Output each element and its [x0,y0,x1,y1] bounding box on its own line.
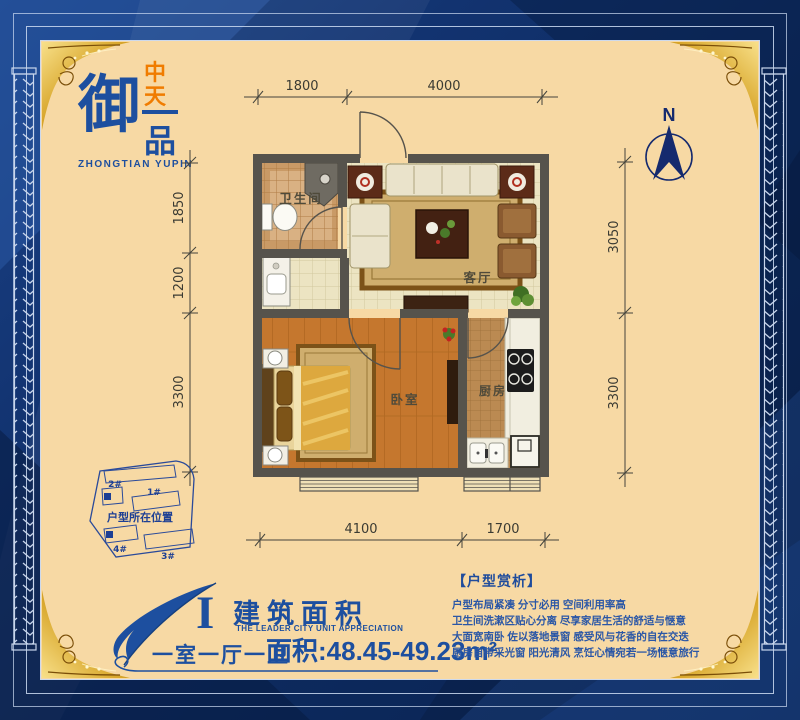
dim-left-0: 1850 [172,191,187,224]
dim-right-0: 3050 [607,220,622,253]
analysis-line: 大面宽南卧 佐以落地景窗 感受风与花香的自在交迭 [452,629,717,645]
poster: 御 中 天 品 ZHONGTIAN YUPIN N [0,0,800,720]
unit-marker [104,493,111,500]
entry-door [360,112,406,158]
floor-plan: 卫生间 客厅 卧室 厨房 1800 4000 [150,55,690,555]
dim-bottom-0: 4100 [344,522,377,537]
room-label-living: 客厅 [462,270,492,285]
dim-left-1: 1200 [172,266,187,299]
dim-top-1: 4000 [427,79,460,94]
coffee-table [416,210,468,258]
right-column-ornament [762,68,786,650]
left-column-ornament [12,68,36,650]
room-label-kitchen: 厨房 [479,383,507,398]
kitchen-unit [511,436,539,467]
site-building-label: 3# [161,552,175,562]
unit-analysis: 【户型赏析】 户型布局紧凑 分寸必用 空间利用率高 卫生间洗漱区贴心分离 尽享家… [452,571,717,661]
analysis-line: 户型布局紧凑 分寸必用 空间利用率高 [452,597,717,613]
kitchen-sink [467,438,508,468]
dim-top-0: 1800 [285,79,318,94]
dim-right-1: 3300 [607,376,622,409]
site-building-label: 4# [113,545,127,555]
washbasin [263,256,290,306]
room-label-bedroom: 卧室 [390,392,419,407]
site-building-label: 1# [147,488,161,498]
analysis-line: 厨房自带采光窗 阳光清风 烹饪心情宛若一场惬意旅行 [452,645,717,661]
unit-marker [106,531,113,538]
site-plan: 2# 1# 4# 3# 户型所在位置 [80,455,225,570]
gas-stove [507,349,534,392]
dim-left-2: 3300 [172,375,187,408]
site-plan-caption: 户型所在位置 [107,510,173,524]
analysis-header: 【户型赏析】 [452,571,717,591]
analysis-line: 卫生间洗漱区贴心分离 尽享家居生活的舒适与惬意 [452,613,717,629]
site-building [144,529,194,549]
room-label-bathroom: 卫生间 [279,191,323,206]
toilet [262,204,297,231]
logo-main-character: 御 [78,54,140,144]
title-numeral: I [196,586,214,640]
bed [262,364,350,452]
dim-bottom-1: 1700 [486,522,519,537]
site-building-label: 2# [108,480,122,490]
bedroom-tv-stand [447,360,458,424]
windows [300,477,540,491]
